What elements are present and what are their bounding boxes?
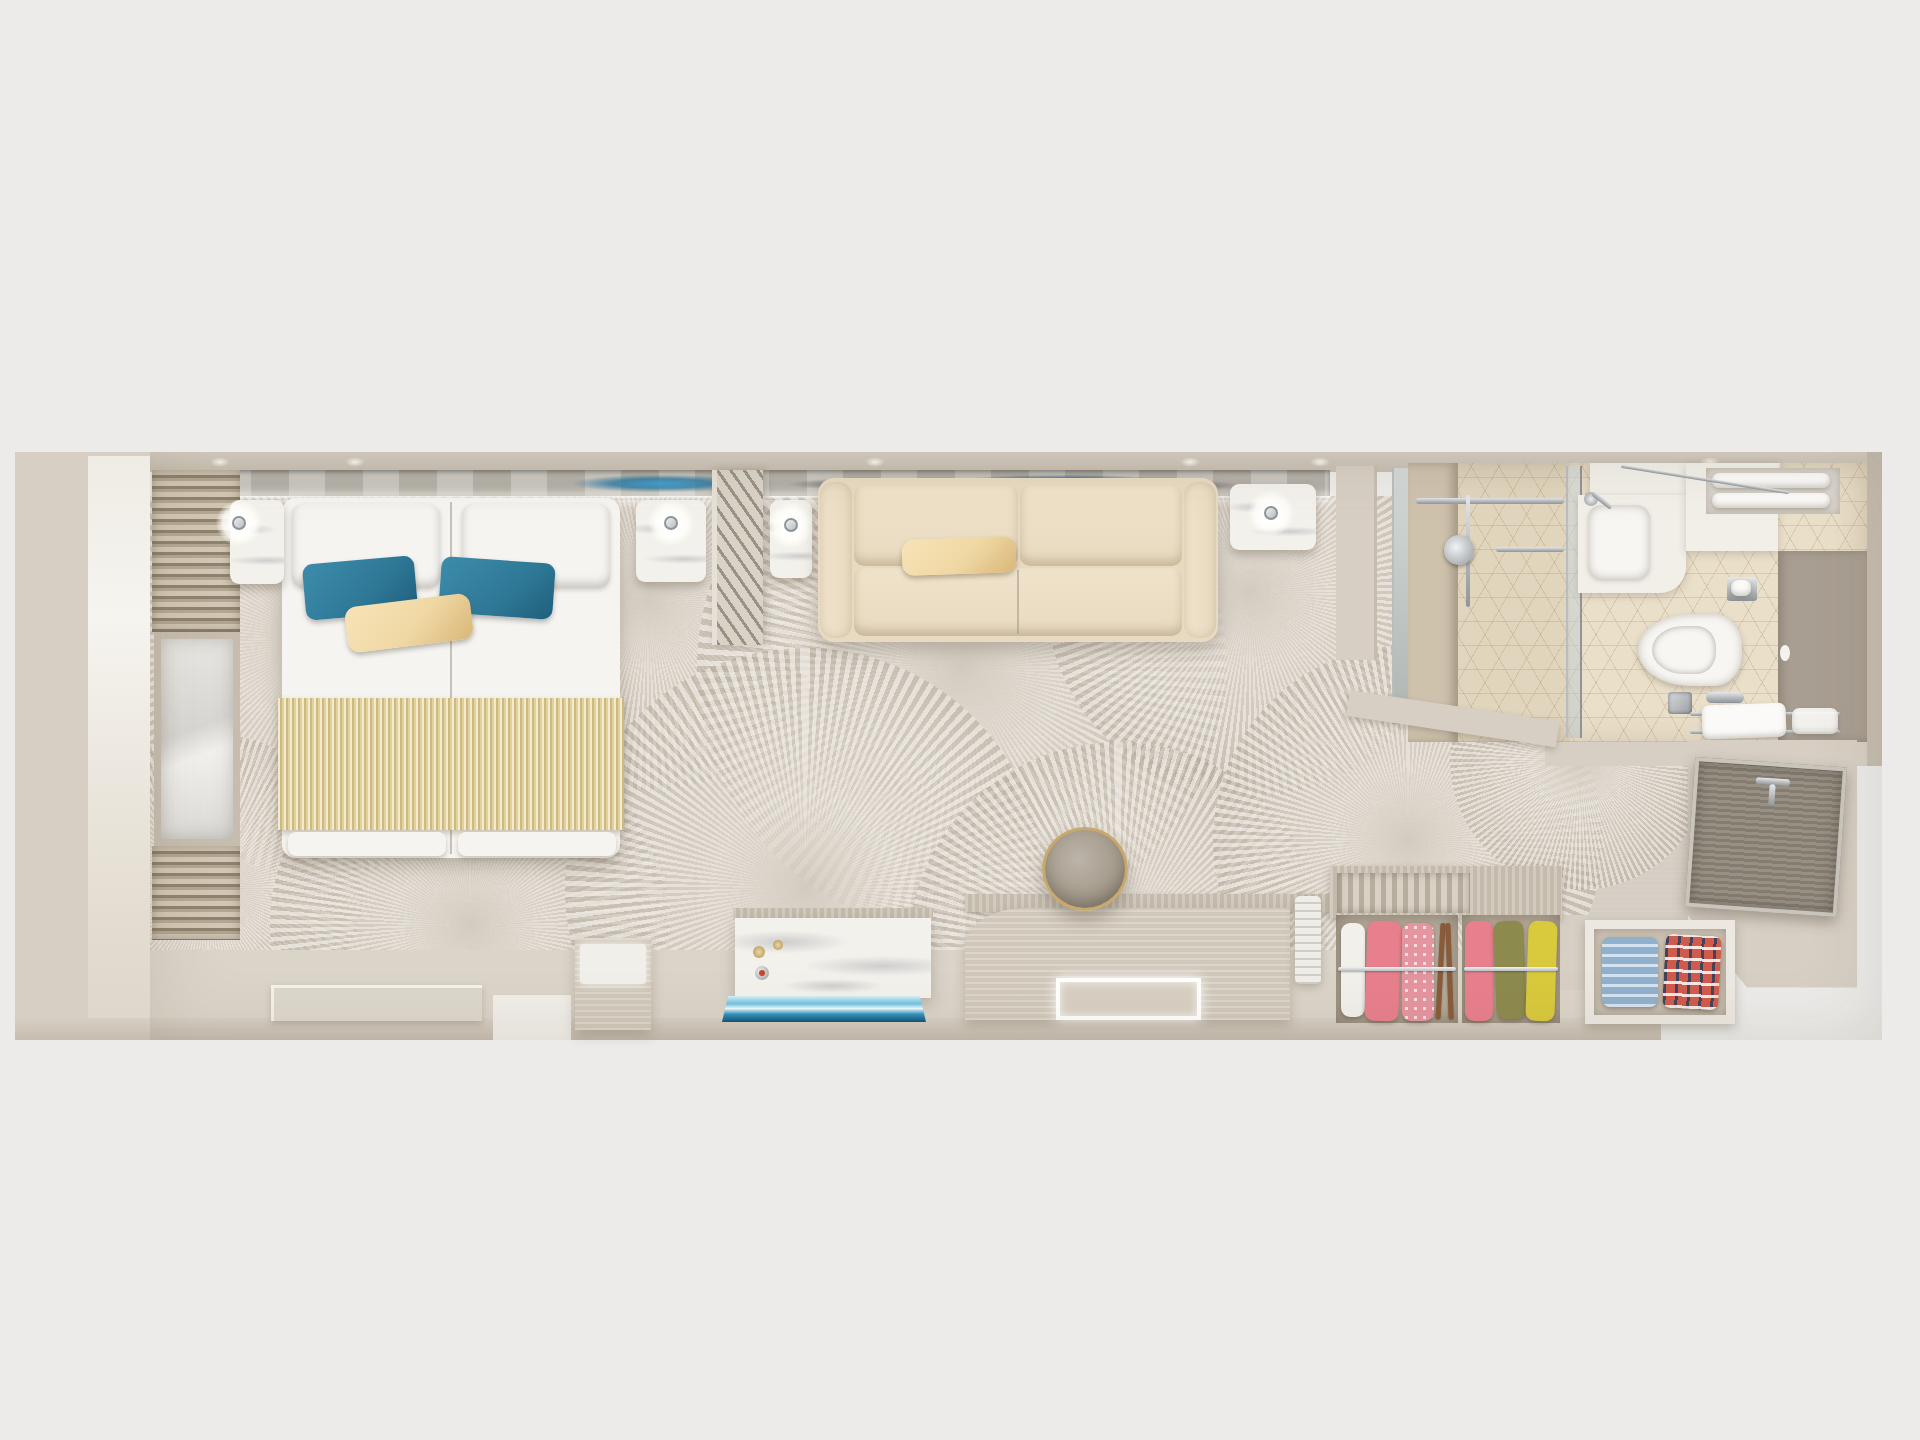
vanity-stool [1042,827,1128,911]
reading-lamp-left [216,500,262,546]
ceiling-downlight [210,457,230,467]
tv-console-marble-front [735,918,931,998]
ceiling-downlight [1310,457,1330,467]
sofa-armrest-right [1184,482,1216,638]
ceiling-downlight [345,457,365,467]
rolled-towel [1712,473,1830,488]
console-knob [753,946,765,958]
shower-door-handle [1496,547,1564,552]
wardrobe-rail [1338,967,1456,971]
hand-sprayer [1706,692,1744,703]
draped-towel [1792,708,1838,734]
bed-foot-left [288,832,446,856]
ceiling-downlight [865,457,885,467]
bed-runner [278,698,624,830]
toilet-seat-inner [1652,626,1716,674]
sink [1588,505,1650,579]
console-knob [773,940,783,950]
flush-button [1780,645,1790,661]
stateroom-floorplan [0,0,1920,1440]
bed-foot-right [458,832,616,856]
reading-lamp-right [648,500,694,546]
toilet-paper-roll [1731,580,1751,596]
wardrobe-rail [1464,967,1558,971]
sofa [818,478,1218,642]
wall-mirror [154,632,240,846]
wardrobe-louver-vent [1337,873,1470,913]
bathroom-right-wall [1867,452,1882,766]
sofa-lumbar-pillow [901,536,1016,576]
bottom-wall-left [15,1018,493,1040]
folded-clothes-blue [1602,937,1658,1007]
wardrobe-shelf-folded-clothes [1585,920,1735,1024]
sofa-back-cushion-right [1020,486,1182,566]
slatted-room-divider [712,470,763,645]
sofa-armrest-left [820,482,852,638]
ac-unit-panel [1295,896,1321,984]
window-blinds-lower [152,846,240,940]
wood-hangers [1435,923,1445,1019]
living-bathroom-wall [1336,466,1377,660]
led-lit-tray [1056,978,1201,1020]
sofa-seat-seam [1017,570,1019,634]
window-bay [88,456,150,1034]
console-knob-red-dot [759,970,765,976]
doorway-gap-floor [493,995,571,1040]
wardrobe-hanging-section-1 [1336,915,1458,1023]
ceiling-downlight [1180,457,1200,467]
hanging-garment-pink [1364,920,1401,1021]
bench-mat [580,944,646,984]
sofa-lamp-right [1248,490,1294,536]
shower-head [1444,535,1474,565]
wood-hangers [1445,923,1453,1019]
window-blinds-upper [152,470,240,632]
tv-screen [722,996,926,1022]
floor-mat [271,985,482,1021]
rolled-towel [1712,493,1830,508]
hanging-garment-rose-patterned [1402,923,1434,1021]
entry-door [1685,757,1847,917]
wardrobe-hanging-section-2 [1462,915,1560,1023]
floor-drain [1668,692,1692,714]
draped-towel [1701,703,1786,740]
hanging-garment-yellow [1525,921,1557,1022]
sofa-lamp-left [768,502,814,548]
luggage-bench [575,938,651,1030]
hanging-garment-pink [1465,921,1493,1021]
folded-plaid-shirt [1662,934,1722,1011]
door-handle-stem [1768,784,1776,806]
shower [1408,463,1570,742]
shower-rail [1416,498,1564,504]
bed [282,498,620,858]
